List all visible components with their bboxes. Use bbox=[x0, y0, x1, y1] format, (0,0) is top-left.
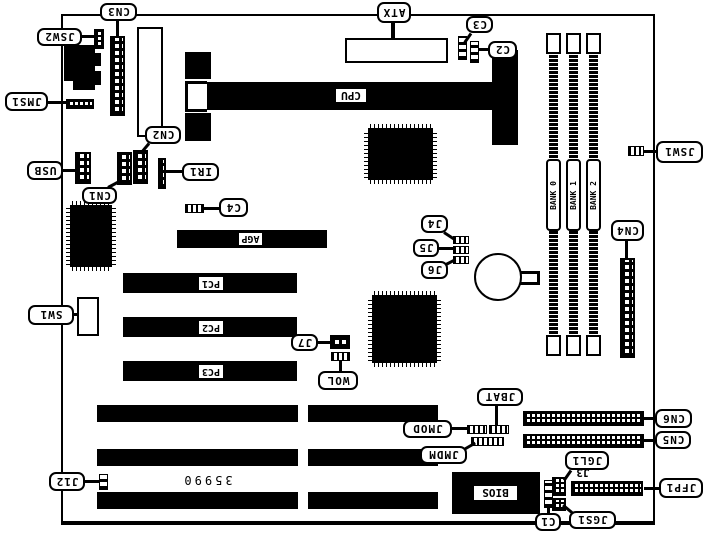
callout-j12-text: J12 bbox=[56, 475, 79, 488]
pointer-jsw2 bbox=[80, 35, 95, 38]
cn4-header bbox=[620, 258, 635, 358]
dimm2-clip-bottom bbox=[586, 335, 601, 356]
label-bank1: BANK 1 bbox=[566, 159, 581, 231]
sw1-dip-switch bbox=[77, 297, 99, 336]
label-pc2-text: PC2 bbox=[202, 322, 220, 333]
callout-ir1: IR1 bbox=[182, 163, 219, 181]
callout-c1-text: C1 bbox=[540, 516, 555, 529]
label-bank0-text: BANK 0 bbox=[549, 181, 558, 210]
callout-j6-text: J6 bbox=[427, 264, 442, 277]
callout-jbat: JBAT bbox=[477, 388, 523, 406]
callout-c3: C3 bbox=[466, 16, 493, 33]
callout-cn4-text: CN4 bbox=[616, 224, 639, 237]
callout-sw1-text: SW1 bbox=[40, 309, 63, 322]
callout-cn2: CN2 bbox=[145, 126, 181, 144]
j5-jumper bbox=[453, 246, 469, 254]
part-number-text: 35990 bbox=[181, 473, 232, 487]
ir1-header bbox=[158, 158, 166, 189]
jms1-connector bbox=[66, 99, 94, 109]
isa3-right bbox=[308, 492, 438, 509]
label-cpu-text: CPU bbox=[341, 89, 361, 102]
jmdm-connector bbox=[471, 437, 504, 446]
isa3-left bbox=[97, 492, 298, 509]
callout-wol: WOL bbox=[318, 371, 358, 390]
callout-jms1-text: JMS1 bbox=[11, 95, 42, 108]
pointer-j7 bbox=[317, 341, 330, 344]
dimm1-clip-top bbox=[566, 33, 581, 54]
io-chip-ticks-bottom bbox=[72, 267, 110, 271]
pointer-ir1 bbox=[166, 170, 182, 173]
callout-jmod: JMOD bbox=[403, 420, 452, 438]
pointer-jmod bbox=[451, 427, 467, 430]
southbridge-ticks-bottom bbox=[374, 363, 435, 367]
callout-cn1-text: CN1 bbox=[88, 189, 111, 202]
callout-jgl1: JGL1 bbox=[565, 451, 609, 470]
callout-ir1-text: IR1 bbox=[189, 166, 212, 179]
callout-c3-text: C3 bbox=[472, 18, 487, 31]
battery-circle bbox=[474, 253, 522, 301]
pointer-j12 bbox=[84, 480, 99, 483]
jfp1-header bbox=[571, 481, 643, 496]
label-pc3-slot: PC3 bbox=[197, 363, 225, 380]
callout-jbat-text: JBAT bbox=[485, 391, 516, 404]
callout-cn2-text: CN2 bbox=[152, 129, 175, 142]
callout-jsw1-text: JSW1 bbox=[664, 146, 695, 159]
cpu-bracket-right-slab bbox=[492, 50, 518, 145]
callout-jfp1-text: JFP1 bbox=[666, 482, 697, 495]
label-bank1-text: BANK 1 bbox=[569, 181, 578, 210]
wol-connector bbox=[331, 352, 350, 361]
pointer-jbat bbox=[495, 405, 498, 425]
silkscreen-part-number: 35990 bbox=[181, 473, 233, 487]
cpu-bracket-left-top bbox=[185, 52, 211, 79]
callout-jsw2: JSW2 bbox=[37, 28, 82, 46]
callout-jmdm-text: JMDM bbox=[428, 449, 459, 462]
pointer-jfp1 bbox=[644, 487, 659, 490]
pointer-jms1 bbox=[46, 101, 66, 104]
jbat-jumper bbox=[489, 425, 509, 434]
callout-sw1: SW1 bbox=[28, 305, 74, 325]
southbridge-chip bbox=[372, 295, 437, 363]
callout-jgs1: JGS1 bbox=[569, 511, 616, 529]
dimm1-body-upper bbox=[569, 54, 578, 159]
callout-jsw1: JSW1 bbox=[656, 141, 703, 163]
callout-j6: J6 bbox=[421, 261, 448, 279]
cn6-header bbox=[523, 411, 644, 426]
pointer-cn4 bbox=[625, 240, 628, 258]
callout-cn1: CN1 bbox=[82, 187, 117, 204]
callout-j7-text: J7 bbox=[297, 336, 312, 349]
label-bios-chip: BIOS bbox=[472, 484, 519, 502]
callout-c4-text: C4 bbox=[226, 201, 241, 214]
c4-component bbox=[185, 204, 204, 213]
dimm2-body-upper bbox=[589, 54, 598, 159]
io-chip-ticks-right bbox=[112, 207, 116, 265]
pointer-cn5 bbox=[644, 439, 655, 442]
label-pc1-text: PC1 bbox=[202, 278, 220, 289]
callout-jms1: JMS1 bbox=[5, 92, 48, 111]
cn3-pin-header bbox=[110, 36, 125, 116]
j12-jumper bbox=[99, 474, 108, 490]
callout-j5-text: J5 bbox=[418, 242, 433, 255]
pointer-atx bbox=[391, 22, 395, 38]
callout-jsw2-text: JSW2 bbox=[44, 31, 75, 44]
callout-atx: ATX bbox=[377, 2, 411, 23]
j7-jumper-block bbox=[330, 335, 350, 349]
c2-component bbox=[470, 41, 479, 63]
keyboard-connector-tab1 bbox=[95, 53, 101, 66]
cpu-bracket-left-bottom bbox=[185, 113, 211, 141]
pointer-jsw1 bbox=[644, 150, 656, 153]
label-agp-text: AGP bbox=[241, 234, 259, 245]
jsw2-jumper bbox=[94, 29, 104, 49]
pointer-j5 bbox=[438, 247, 453, 250]
callout-j12: J12 bbox=[49, 472, 85, 491]
callout-jmdm: JMDM bbox=[420, 446, 467, 464]
callout-jgl1-text: JGL1 bbox=[572, 454, 603, 467]
dimm0-clip-top bbox=[546, 33, 561, 54]
label-agp-slot: AGP bbox=[237, 231, 264, 247]
callout-c4: C4 bbox=[219, 198, 248, 217]
io-chip bbox=[70, 205, 112, 267]
callout-jgs1-text: JGS1 bbox=[577, 514, 608, 527]
northbridge-ticks-bottom bbox=[370, 180, 431, 184]
callout-cn5-text: CN5 bbox=[662, 434, 685, 447]
label-bank0: BANK 0 bbox=[546, 159, 561, 231]
label-pc3-text: PC3 bbox=[202, 366, 220, 377]
northbridge-chip bbox=[368, 128, 433, 180]
dimm0-body-upper bbox=[549, 54, 558, 159]
callout-j5: J5 bbox=[413, 239, 439, 257]
dimm2-body-lower bbox=[589, 231, 598, 335]
callout-c1: C1 bbox=[535, 513, 561, 531]
din-socket-outline bbox=[137, 27, 163, 137]
callout-j4: J4 bbox=[421, 215, 448, 233]
pointer-cn6 bbox=[644, 417, 655, 420]
dimm1-body-lower bbox=[569, 231, 578, 335]
callout-cn3-text: CN3 bbox=[107, 6, 130, 19]
label-bank2: BANK 2 bbox=[586, 159, 601, 231]
callout-jmod-text: JMOD bbox=[412, 423, 443, 436]
callout-c2-text: C2 bbox=[495, 44, 510, 57]
callout-c2: C2 bbox=[488, 41, 517, 59]
callout-cn6-text: CN6 bbox=[662, 412, 685, 425]
atx-connector bbox=[345, 38, 448, 63]
pointer-c4 bbox=[204, 207, 219, 210]
jmod-connector bbox=[467, 425, 487, 434]
callout-cn3: CN3 bbox=[100, 3, 137, 21]
pointer-usb bbox=[61, 169, 75, 172]
isa1-left bbox=[97, 405, 298, 422]
callout-wol-text: WOL bbox=[327, 374, 350, 387]
callout-usb-text: USB bbox=[34, 164, 57, 177]
cpu-bracket-left-c bbox=[185, 81, 207, 112]
motherboard-diagram: CN3 JSW2 JMS1 USB CN1 CN2 IR1 C4 ATX C3 … bbox=[0, 0, 710, 537]
pointer-cn3 bbox=[116, 19, 119, 36]
usb-header bbox=[75, 152, 91, 184]
isa2-left bbox=[97, 449, 298, 466]
isa2-right bbox=[308, 449, 438, 466]
callout-usb: USB bbox=[27, 161, 63, 180]
callout-cn5: CN5 bbox=[655, 431, 691, 449]
callout-cn6: CN6 bbox=[655, 409, 692, 428]
callout-atx-text: ATX bbox=[383, 6, 406, 19]
keyboard-connector-body bbox=[64, 45, 95, 81]
label-pc1-slot: PC1 bbox=[197, 275, 225, 292]
callout-j4-text: J4 bbox=[427, 218, 442, 231]
cn5-header bbox=[523, 434, 644, 448]
jsw1-connector bbox=[628, 146, 644, 156]
label-pc2-slot: PC2 bbox=[197, 319, 225, 336]
callout-j7: J7 bbox=[291, 334, 318, 351]
label-bios-text: BIOS bbox=[482, 487, 509, 500]
keyboard-connector-tab2 bbox=[95, 71, 101, 85]
dimm0-clip-bottom bbox=[546, 335, 561, 356]
callout-jfp1: JFP1 bbox=[659, 478, 703, 498]
cn2-header bbox=[133, 150, 148, 184]
southbridge-ticks-right bbox=[437, 297, 441, 361]
dimm2-clip-top bbox=[586, 33, 601, 54]
label-bank2-text: BANK 2 bbox=[589, 181, 598, 210]
dimm1-clip-bottom bbox=[566, 335, 581, 356]
label-cpu-slot: CPU bbox=[334, 87, 368, 104]
northbridge-ticks-right bbox=[433, 130, 437, 178]
callout-cn4: CN4 bbox=[611, 220, 644, 241]
dimm0-body-lower bbox=[549, 231, 558, 335]
